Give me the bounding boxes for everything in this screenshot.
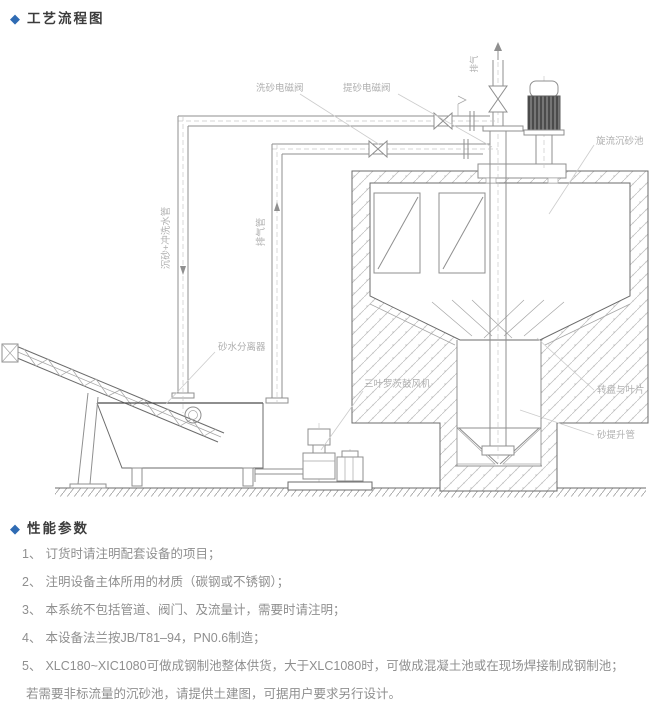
vent-arrow-icon	[494, 42, 502, 51]
process-flow-title: 工艺流程图	[27, 7, 105, 27]
note-text: 订货时请注明配套设备的项目；	[45, 546, 654, 562]
diagram-svg: 洗砂电磁阀 提砂电磁阀 排气 旋流沉砂池 沉砂+冲洗水管 排气管 砂水分离器 三…	[0, 38, 660, 514]
note-item: 若需要非标流量的沉砂池，请提供土建图，可据用户要求另行设计。	[22, 686, 654, 714]
discharge-valve-and-vent	[483, 42, 523, 131]
process-flow-header: ◆ 工艺流程图	[10, 7, 105, 27]
label-cyclone-tank: 旋流沉砂池	[596, 135, 644, 147]
tap-valve-icon	[458, 96, 466, 116]
diamond-bullet-icon: ◆	[10, 522, 20, 535]
note-number: 4、	[22, 630, 41, 646]
note-number: 2、	[22, 574, 41, 590]
performance-title: 性能参数	[27, 517, 89, 537]
roots-blower	[255, 423, 372, 490]
note-item: 1、 订货时请注明配套设备的项目；	[22, 546, 654, 574]
page: ◆ 工艺流程图	[0, 0, 660, 715]
label-wash-valve: 洗砂电磁阀	[256, 82, 304, 94]
label-grit-wash-pipe: 沉砂+冲洗水管	[160, 207, 172, 270]
note-text: 注明设备主体所用的材质（碳钢或不锈钢）；	[45, 574, 654, 590]
note-number: 1、	[22, 546, 41, 562]
motor	[524, 76, 564, 168]
performance-header: ◆ 性能参数	[10, 517, 89, 537]
label-lift-valve: 提砂电磁阀	[343, 82, 391, 94]
note-text: 本系统不包括管道、阀门、及流量计，需要时请注明；	[45, 602, 654, 618]
label-sand-lift-pipe: 砂提升管	[597, 429, 635, 441]
pipe-top-b	[272, 139, 498, 159]
diamond-bullet-icon: ◆	[10, 12, 20, 25]
pipe-top-a	[178, 96, 498, 131]
cyclone-grit-chamber	[352, 171, 648, 491]
label-vent: 排气	[469, 55, 479, 73]
sand-water-separator	[2, 344, 263, 488]
label-roots-blower: 三叶罗茨鼓风机	[364, 378, 431, 390]
flow-arrow-icon	[180, 266, 186, 275]
note-item: 3、 本系统不包括管道、阀门、及流量计，需要时请注明；	[22, 602, 654, 630]
note-text: XLC180~XIC1080可做成钢制池整体供货，大于XLC1080时，可做成混…	[45, 658, 654, 674]
note-number: 5、	[22, 658, 41, 674]
grit-wash-riser-pipe	[172, 116, 194, 413]
performance-notes-list: 1、 订货时请注明配套设备的项目； 2、 注明设备主体所用的材质（碳钢或不锈钢）…	[22, 546, 654, 714]
note-text: 本设备法兰按JB/T81–94，PN0.6制造；	[45, 630, 654, 646]
process-flow-diagram: 洗砂电磁阀 提砂电磁阀 排气 旋流沉砂池 沉砂+冲洗水管 排气管 砂水分离器 三…	[0, 38, 660, 514]
note-text: 若需要非标流量的沉砂池，请提供土建图，可据用户要求另行设计。	[26, 686, 654, 702]
note-number: 3、	[22, 602, 41, 618]
label-disc-blades: 转盘与叶片	[597, 384, 645, 396]
note-item: 5、 XLC180~XIC1080可做成钢制池整体供货，大于XLC1080时，可…	[22, 658, 654, 686]
note-item: 4、 本设备法兰按JB/T81–94，PN0.6制造；	[22, 630, 654, 658]
label-sand-water-separator: 砂水分离器	[218, 341, 266, 353]
flow-arrow-icon	[274, 202, 280, 211]
note-item: 2、 注明设备主体所用的材质（碳钢或不锈钢）；	[22, 574, 654, 602]
exhaust-riser-pipe	[266, 144, 288, 403]
label-exhaust-pipe: 排气管	[255, 218, 267, 247]
